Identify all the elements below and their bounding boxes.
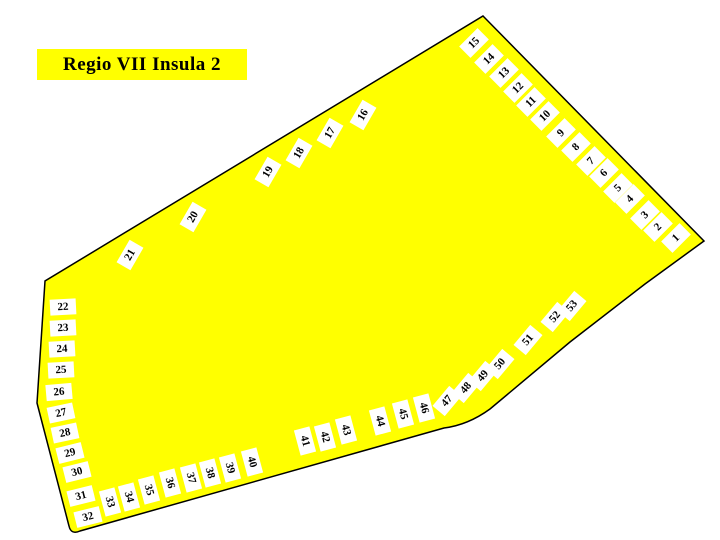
entrance-number: 44 bbox=[373, 414, 386, 427]
insula-map bbox=[0, 0, 720, 540]
entrance-number: 19 bbox=[260, 164, 275, 179]
entrance-number: 29 bbox=[63, 446, 76, 459]
entrance-number: 7 bbox=[585, 155, 597, 167]
entrance-number: 35 bbox=[142, 483, 155, 496]
entrance-number: 33 bbox=[103, 495, 116, 508]
entrance-number: 21 bbox=[122, 247, 137, 262]
entrance-22[interactable]: 22 bbox=[50, 298, 77, 315]
entrance-number: 24 bbox=[56, 343, 68, 355]
entrance-number: 42 bbox=[318, 430, 331, 443]
insula-outline bbox=[37, 16, 704, 532]
entrance-number: 46 bbox=[417, 401, 430, 414]
entrance-number: 9 bbox=[555, 127, 567, 139]
entrance-number: 13 bbox=[496, 65, 512, 81]
entrance-23[interactable]: 23 bbox=[50, 319, 77, 336]
entrance-number: 23 bbox=[57, 322, 69, 334]
entrance-number: 31 bbox=[74, 489, 87, 502]
entrance-number: 6 bbox=[598, 167, 610, 179]
entrance-number: 45 bbox=[396, 407, 409, 420]
entrance-number: 10 bbox=[537, 108, 553, 124]
entrance-number: 25 bbox=[55, 364, 67, 376]
map-title: Regio VII Insula 2 bbox=[37, 49, 247, 80]
entrance-number: 47 bbox=[439, 393, 454, 408]
entrance-number: 51 bbox=[520, 332, 535, 347]
entrance-number: 4 bbox=[624, 193, 636, 205]
entrance-number: 15 bbox=[466, 35, 482, 51]
entrance-number: 53 bbox=[564, 298, 579, 313]
entrance-number: 43 bbox=[339, 423, 352, 436]
entrance-number: 18 bbox=[291, 145, 306, 160]
entrance-number: 32 bbox=[81, 510, 94, 523]
entrance-number: 26 bbox=[53, 386, 65, 398]
entrance-number: 16 bbox=[355, 107, 370, 122]
entrance-number: 28 bbox=[58, 426, 71, 439]
entrance-number: 17 bbox=[322, 125, 337, 140]
entrance-number: 8 bbox=[570, 141, 582, 153]
insula-map-page: Regio VII Insula 2 123456789101112131415… bbox=[0, 0, 720, 540]
entrance-number: 30 bbox=[70, 465, 83, 478]
entrance-26[interactable]: 26 bbox=[45, 383, 72, 401]
entrance-number: 40 bbox=[245, 455, 258, 468]
entrance-number: 5 bbox=[612, 182, 624, 194]
entrance-number: 20 bbox=[185, 209, 200, 224]
entrance-24[interactable]: 24 bbox=[49, 340, 76, 357]
entrance-number: 1 bbox=[670, 232, 682, 244]
entrance-number: 38 bbox=[203, 466, 216, 479]
entrance-number: 2 bbox=[652, 221, 664, 233]
entrance-number: 37 bbox=[184, 471, 197, 484]
entrance-number: 50 bbox=[492, 356, 507, 371]
entrance-number: 34 bbox=[122, 490, 135, 503]
entrance-number: 12 bbox=[510, 80, 526, 96]
entrance-number: 27 bbox=[54, 406, 67, 419]
entrance-25[interactable]: 25 bbox=[48, 361, 75, 378]
entrance-number: 3 bbox=[639, 209, 651, 221]
entrance-number: 14 bbox=[481, 51, 497, 67]
entrance-number: 11 bbox=[523, 94, 538, 109]
entrance-number: 36 bbox=[163, 476, 176, 489]
entrance-number: 39 bbox=[223, 461, 236, 474]
entrance-number: 22 bbox=[57, 301, 69, 313]
entrance-number: 41 bbox=[298, 434, 311, 447]
